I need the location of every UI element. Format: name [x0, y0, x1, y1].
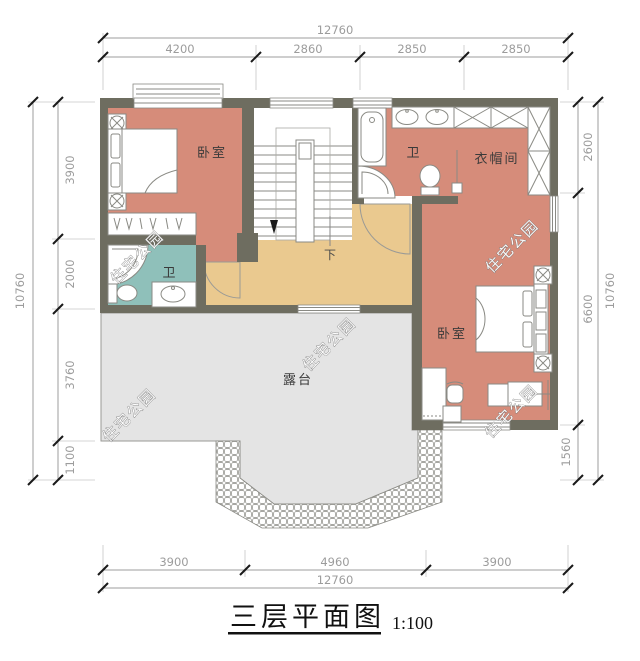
bathtub: [358, 108, 386, 166]
terrace-door-window: [298, 305, 360, 313]
bedside-fan-icon: [534, 266, 552, 284]
drawer-unit: [443, 406, 461, 422]
dim-top-overall: 12760: [317, 23, 354, 37]
title-block: 三层平面图 1:100: [228, 602, 433, 635]
cloakroom-label: 衣帽间: [474, 151, 519, 166]
toilet-left: [108, 284, 137, 303]
bedroom-right-label: 卧室: [437, 326, 467, 341]
bath-right-window: [353, 98, 392, 108]
bay-window: [133, 84, 223, 108]
pillow: [523, 322, 532, 347]
dim-bottom-overall: 12760: [317, 573, 354, 587]
dim-bottom-seg: 3900: [159, 555, 188, 569]
dim-top-seg: 4200: [165, 42, 194, 56]
dim-left-seg: 2000: [63, 259, 77, 288]
dim-right-seg: 2600: [581, 132, 595, 161]
bath-right-label: 卫: [406, 145, 421, 160]
bedside-fan-icon: [108, 192, 126, 210]
dim-left-seg: 3900: [63, 155, 77, 184]
pillow: [523, 291, 532, 316]
dim-right-overall: 10760: [603, 273, 617, 310]
desk-chair: [447, 382, 463, 403]
bedroom-left-label: 卧室: [197, 145, 227, 160]
pillow: [111, 134, 120, 158]
plan-title: 三层平面图: [230, 602, 385, 632]
bedside-fan-icon: [534, 354, 552, 372]
dim-top-seg: 2860: [293, 42, 322, 56]
toilet-right: [420, 165, 440, 195]
floor-plan-drawing: 卧室 卫 卫 衣帽间 卧室 露台 下 住宅公园 住宅公园 住宅公园 住宅公园 住…: [0, 0, 640, 661]
bath-left-label: 卫: [162, 265, 177, 280]
floor-plan-page: 卧室 卫 卫 衣帽间 卧室 露台 下 住宅公园 住宅公园 住宅公园 住宅公园 住…: [0, 0, 640, 661]
hallway-under-stairs: [254, 240, 352, 262]
double-vanity: [392, 107, 454, 128]
dim-right-seg: 6600: [581, 294, 595, 323]
dim-left-seg: 1100: [63, 445, 77, 474]
dim-left-overall: 10760: [13, 273, 27, 310]
dim-bottom-seg: 4960: [320, 555, 349, 569]
stairwell: [254, 108, 352, 246]
desk: [422, 368, 446, 420]
sink-left: [152, 282, 196, 307]
dim-right-seg: 1560: [559, 437, 573, 466]
title-underline: [228, 632, 381, 635]
stair-down-label: 下: [324, 248, 336, 262]
dim-top-seg: 2850: [501, 42, 530, 56]
plan-scale: 1:100: [392, 613, 433, 633]
dim-bottom-seg: 3900: [482, 555, 511, 569]
stair-window: [270, 98, 333, 108]
pillow: [111, 163, 120, 187]
wardrobe-top: [454, 107, 528, 128]
right-wall-window: [550, 196, 558, 232]
terrace-label: 露台: [283, 372, 313, 387]
dim-top-seg: 2850: [397, 42, 426, 56]
wardrobe-right: [528, 107, 550, 195]
dim-left-seg: 3760: [63, 360, 77, 389]
